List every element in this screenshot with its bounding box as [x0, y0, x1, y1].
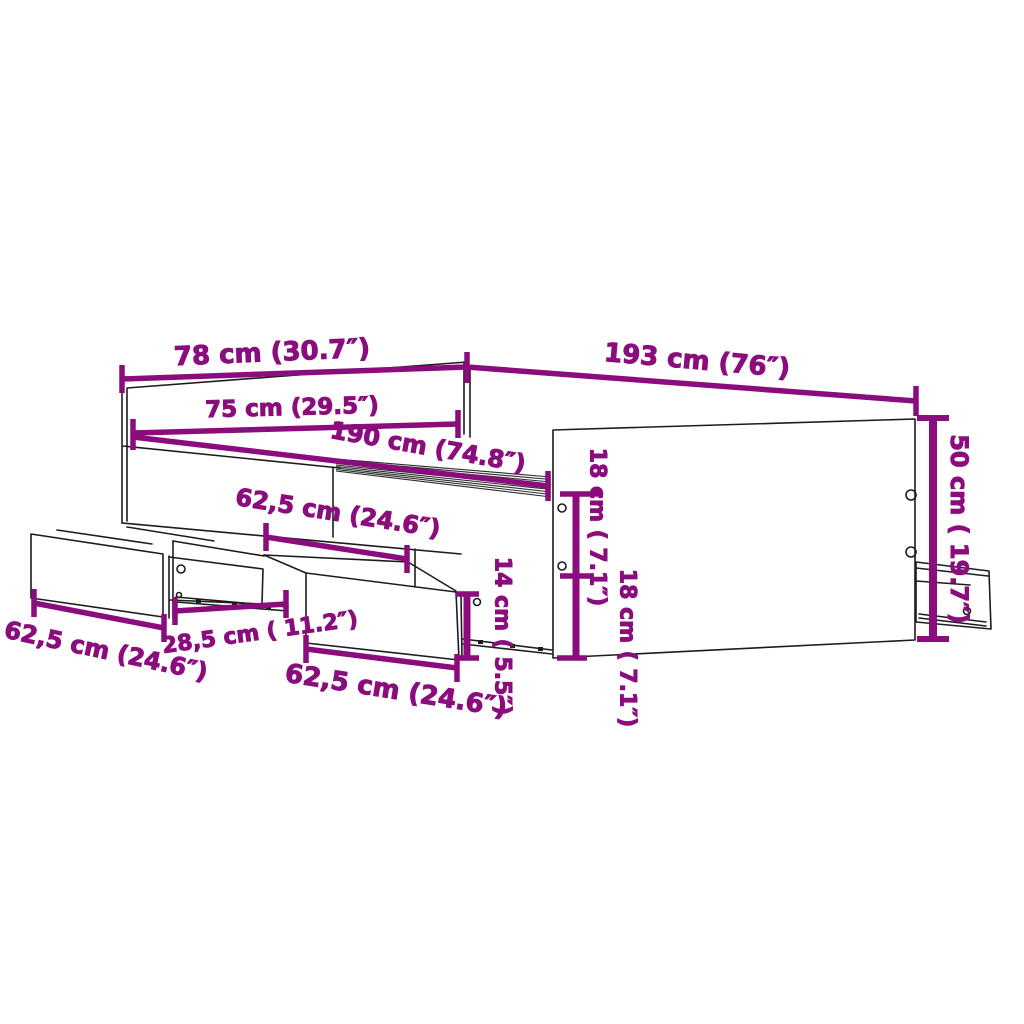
dim-label-side-rail-lower-height: 18 cm ( 7.1″): [615, 569, 640, 727]
dim-label-drawer-front-height: 14 cm ( 5.5″): [490, 557, 515, 715]
dim-label-headboard-width: 78 cm (30.7″): [173, 334, 370, 373]
screw-hole: [474, 599, 481, 606]
dim-label-frame-height: 50 cm ( 19.7″): [945, 434, 973, 624]
diagram-page: 78 cm (30.7″) 193 cm (76″) 75 cm (29.5″)…: [0, 0, 1024, 1024]
dim-frame-length-outer: 193 cm (76″): [467, 338, 916, 416]
screw-hole: [177, 565, 185, 573]
dim-label-side-rail-upper-height: 18 cm ( 7.1″): [585, 448, 610, 606]
dim-drawer-opening-width: 62,5 cm (24.6″): [234, 483, 443, 573]
dim-label-center-drawer-width: 62,5 cm (24.6″): [283, 659, 509, 724]
bed-dimension-diagram: 78 cm (30.7″) 193 cm (76″) 75 cm (29.5″)…: [0, 0, 1024, 1024]
